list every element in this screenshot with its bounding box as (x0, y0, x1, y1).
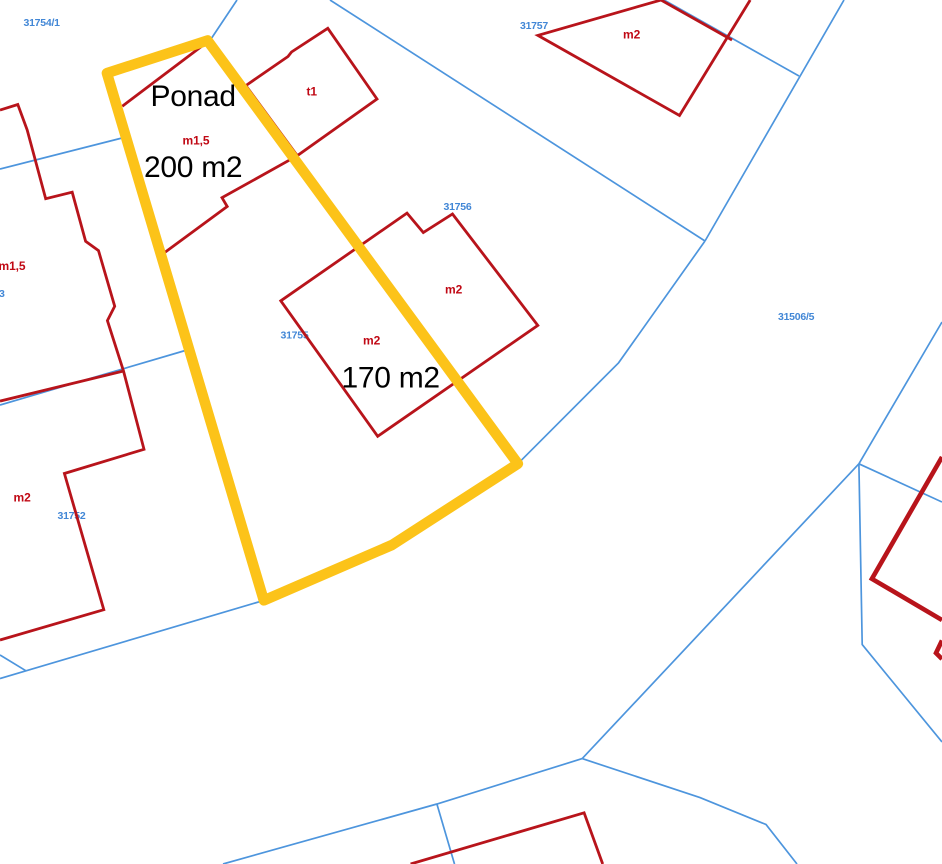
svg-text:170 m2: 170 m2 (342, 362, 440, 395)
svg-text:200 m2: 200 m2 (144, 151, 242, 184)
svg-text:31756: 31756 (444, 201, 472, 213)
svg-text:m2: m2 (623, 28, 641, 42)
svg-text:m1,5: m1,5 (0, 259, 26, 273)
svg-text:m2: m2 (14, 491, 32, 505)
svg-text:m2: m2 (363, 334, 381, 348)
svg-text:31506/5: 31506/5 (778, 311, 815, 323)
svg-text:m1,5: m1,5 (183, 134, 210, 148)
svg-text:m2: m2 (445, 283, 463, 297)
svg-text:t1: t1 (307, 85, 318, 99)
svg-text:Ponad: Ponad (151, 80, 236, 113)
svg-text:3: 3 (0, 288, 5, 300)
svg-text:31752: 31752 (58, 510, 86, 522)
svg-text:31754/1: 31754/1 (24, 17, 61, 29)
svg-text:31757: 31757 (520, 20, 548, 32)
